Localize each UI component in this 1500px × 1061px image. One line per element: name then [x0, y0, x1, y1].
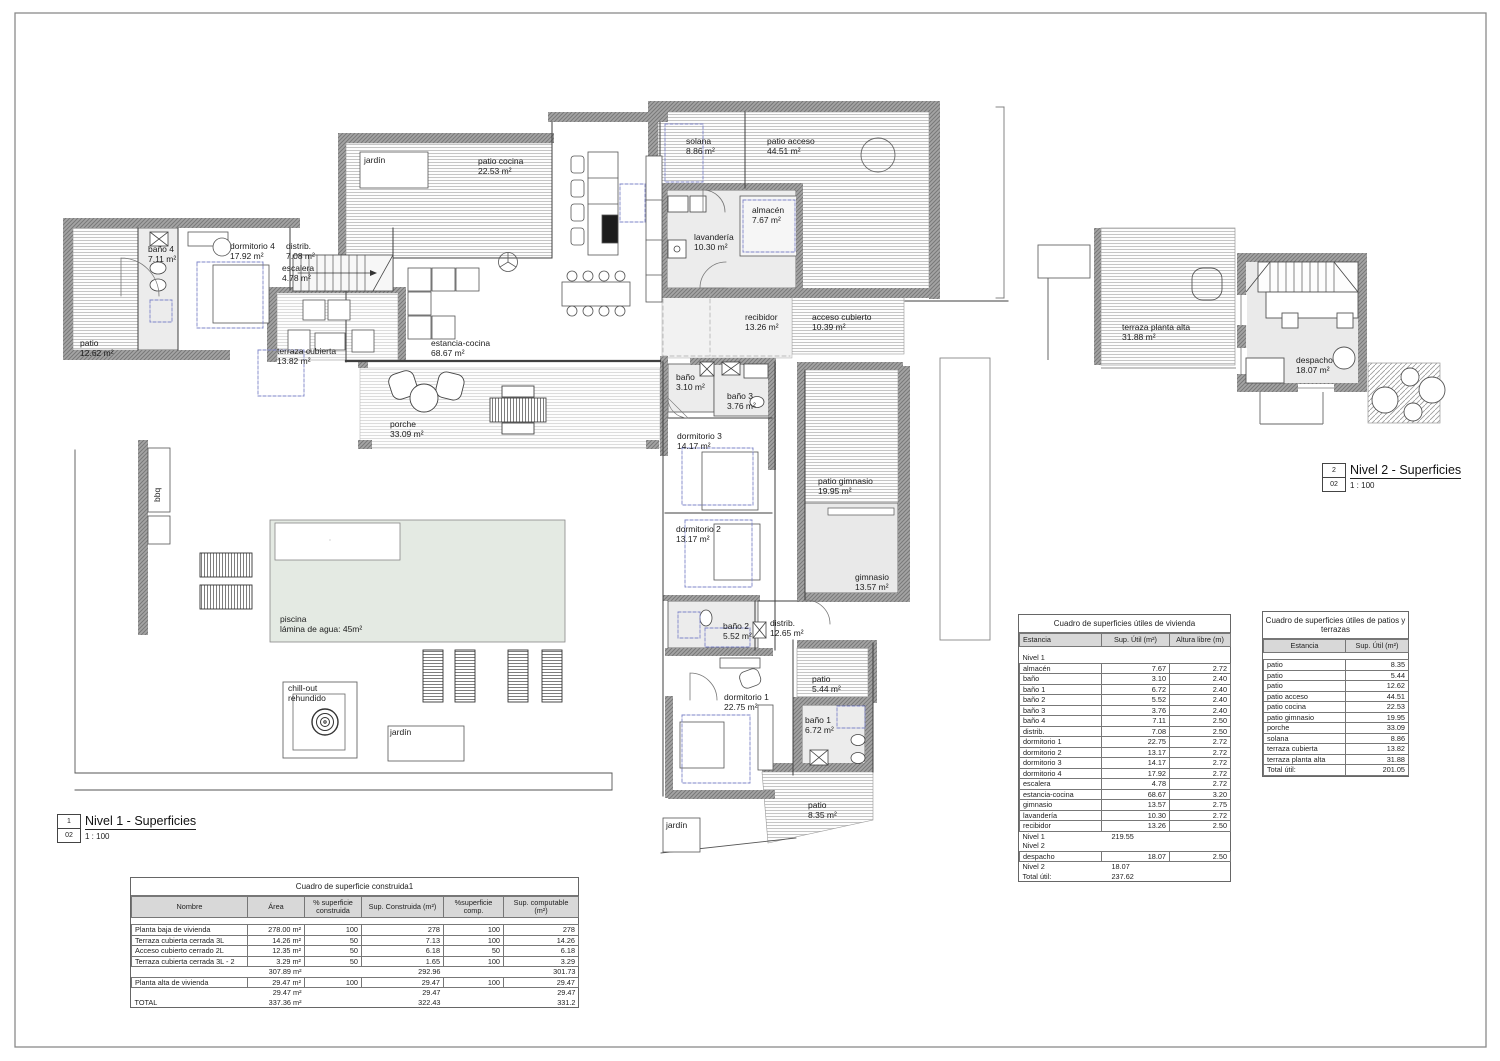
- table-cell: [305, 918, 362, 925]
- drawing-sheet: jardín patio cocina22.53 m² solana8.86 m…: [0, 0, 1500, 1061]
- titleblock-number-box: 2 02: [1322, 463, 1346, 492]
- table-cell: Nivel 1: [1020, 831, 1102, 841]
- room-label-porche: porche33.09 m²: [390, 419, 424, 439]
- table-cell: estancia-cocina: [1020, 789, 1102, 800]
- table-cell: 18.07: [1102, 862, 1170, 872]
- table-cell: [444, 918, 504, 925]
- table-cell: 2.75: [1170, 800, 1231, 811]
- table-cell: [362, 918, 444, 925]
- table-cell: 14.17: [1102, 758, 1170, 769]
- table-cell: TOTAL: [132, 998, 248, 1008]
- table-cell: 10.30: [1102, 810, 1170, 821]
- table-cell: escalera: [1020, 779, 1102, 790]
- plan-title: Nivel 2 - Superficies: [1350, 463, 1461, 479]
- table-row: patio5.44: [1264, 670, 1409, 681]
- table-cell: 2.40: [1170, 705, 1231, 716]
- table-cell: 8.86: [1346, 733, 1409, 744]
- table-row: porche33.09: [1264, 723, 1409, 734]
- table-cell: 100: [444, 935, 504, 946]
- table-cell: [305, 988, 362, 998]
- boundary-line: [996, 107, 1004, 298]
- room-label-estancia: estancia-cocina68.67 m²: [431, 338, 490, 358]
- table-row: [1264, 653, 1409, 660]
- sheet-number: 2: [1323, 464, 1345, 477]
- plan-scale: 1 : 100: [1350, 481, 1461, 490]
- room-label-patio835: patio8.35 m²: [808, 800, 837, 820]
- room-label-jardin-bottom: jardín: [666, 820, 687, 830]
- table-row: Planta alta de vivienda29.47 m²10029.471…: [132, 977, 579, 988]
- room-label-patio-gimnasio: patio gimnasio19.95 m²: [818, 476, 873, 496]
- lounger: [200, 585, 252, 609]
- table-cell: 2.50: [1170, 851, 1231, 862]
- patio-izq-deck: [73, 228, 138, 350]
- room-label-solana: solana8.86 m²: [686, 136, 715, 156]
- table-cell: recibidor: [1020, 821, 1102, 832]
- table-cell: 33.09: [1346, 723, 1409, 734]
- table-row: baño 16.722.40: [1020, 684, 1231, 695]
- table-cell: 2.72: [1170, 779, 1231, 790]
- room-label-recibidor: recibidor13.26 m²: [745, 312, 779, 332]
- table-cell: Nivel 2: [1020, 862, 1102, 872]
- table-cell: 13.17: [1102, 747, 1170, 758]
- dining-table: [562, 271, 630, 316]
- column-header: %superficie comp.: [444, 897, 504, 918]
- table-cell: 18.07: [1102, 851, 1170, 862]
- room-label-patio-acceso: patio acceso44.51 m²: [767, 136, 815, 156]
- table-row: lavandería10.302.72: [1020, 810, 1231, 821]
- room-label-despacho: despacho18.07 m²: [1296, 355, 1333, 375]
- table-cell: 29.47: [504, 988, 579, 998]
- column-header: Estancia: [1264, 640, 1346, 653]
- plan-title: Nivel 1 - Superficies: [85, 814, 196, 830]
- table-cell: baño 1: [1020, 684, 1102, 695]
- table-row: Total útil:201.05: [1264, 765, 1409, 776]
- table-cell: 337.36 m²: [248, 998, 305, 1008]
- room-label-patio544: patio5.44 m²: [812, 674, 841, 694]
- room-label-lavanderia: lavandería10.30 m²: [694, 232, 734, 252]
- table-row: Total útil:237.62: [1020, 872, 1231, 882]
- table-cell: 2.40: [1170, 674, 1231, 685]
- room-label-jardin-pool: jardín: [390, 727, 411, 737]
- table-cell: [444, 967, 504, 978]
- table-row: terraza planta alta31.88: [1264, 754, 1409, 765]
- room-label-piscina: piscinalámina de agua: 45m²: [280, 614, 362, 634]
- table-cell: porche: [1264, 723, 1346, 734]
- table-row: solana8.86: [1264, 733, 1409, 744]
- table-cell: [444, 988, 504, 998]
- table-cell: [1170, 653, 1231, 663]
- table-cell: [305, 998, 362, 1008]
- table-cell: Total útil:: [1020, 872, 1102, 882]
- table-cell: distrib.: [1020, 726, 1102, 737]
- table-cell: 2.72: [1170, 810, 1231, 821]
- table-cell: 2.40: [1170, 684, 1231, 695]
- room-label-patio-izq: patio12.62 m²: [80, 338, 114, 358]
- gym-equipment: [828, 508, 894, 515]
- lounger: [200, 553, 252, 577]
- table-cell: 2.50: [1170, 726, 1231, 737]
- table-row: almacén7.672.72: [1020, 663, 1231, 674]
- table-cell: 322.43: [362, 998, 444, 1008]
- level2-plan: [1038, 228, 1445, 424]
- table-cell: [1102, 653, 1170, 663]
- table-cell: patio cocina: [1264, 702, 1346, 713]
- table-cell: [1170, 841, 1231, 851]
- column-header: Altura libre (m): [1170, 634, 1231, 647]
- table-cell: 292.96: [362, 967, 444, 978]
- table-cell: 278: [504, 925, 579, 936]
- table-cell: 2.40: [1170, 695, 1231, 706]
- table-cell: 100: [305, 977, 362, 988]
- table-cell: [504, 918, 579, 925]
- table-cell: Total útil:: [1264, 765, 1346, 776]
- table-cell: 6.18: [362, 946, 444, 957]
- table-cell: [1102, 841, 1170, 851]
- column-header: Nombre: [132, 897, 248, 918]
- table-cell: despacho: [1020, 851, 1102, 862]
- table-cell: 5.44: [1346, 670, 1409, 681]
- table-cell: 307.89 m²: [248, 967, 305, 978]
- table-cell: [248, 918, 305, 925]
- table-cell: 12.62: [1346, 681, 1409, 692]
- table-cell: 2.72: [1170, 747, 1231, 758]
- table-cell: almacén: [1020, 663, 1102, 674]
- table-cell: [444, 998, 504, 1008]
- table-cell: Terraza cubierta cerrada 3L - 2: [132, 956, 248, 967]
- table-cell: [1346, 653, 1409, 660]
- table-cell: 7.08: [1102, 726, 1170, 737]
- table-cell: lavandería: [1020, 810, 1102, 821]
- room-label-escalera: escalera4.78 m²: [282, 263, 314, 283]
- planter: [940, 358, 990, 640]
- table-cell: 13.82: [1346, 744, 1409, 755]
- table-cell: 29.47: [362, 988, 444, 998]
- table-cell: 2.72: [1170, 758, 1231, 769]
- table-cell: 50: [444, 946, 504, 957]
- table-cell: 100: [444, 956, 504, 967]
- column-header: Sup. Construida (m²): [362, 897, 444, 918]
- table-cell: 13.26: [1102, 821, 1170, 832]
- table-cell: dormitorio 4: [1020, 768, 1102, 779]
- table-cell: [1170, 831, 1231, 841]
- table-row: gimnasio13.572.75: [1020, 800, 1231, 811]
- plan-scale: 1 : 100: [85, 832, 196, 841]
- lounger: [455, 650, 475, 702]
- room-label-dormitorio4: dormitorio 417.92 m²: [230, 241, 275, 261]
- table-cell: 7.67: [1102, 663, 1170, 674]
- room-label-bano2: baño 25.52 m²: [723, 621, 752, 641]
- table-cell: 22.53: [1346, 702, 1409, 713]
- column-header: % superficie construida: [305, 897, 362, 918]
- table-row: dormitorio 122.752.72: [1020, 737, 1231, 748]
- column-header: Área: [248, 897, 305, 918]
- table-cell: [1170, 872, 1231, 882]
- table-row: Nivel 1: [1020, 653, 1231, 663]
- table-cell: 29.47 m²: [248, 988, 305, 998]
- table-cell: terraza cubierta: [1264, 744, 1346, 755]
- table-cell: 6.72: [1102, 684, 1170, 695]
- table-cell: 29.47: [362, 977, 444, 988]
- room-label-patio-cocina: patio cocina22.53 m²: [478, 156, 523, 176]
- table-row: Acceso cubierto cerrado 2L12.35 m²506.18…: [132, 946, 579, 957]
- table-row: Terraza cubierta cerrada 3L - 23.29 m²50…: [132, 956, 579, 967]
- table-cell: patio gimnasio: [1264, 712, 1346, 723]
- room-label-dormitorio3: dormitorio 314.17 m²: [677, 431, 722, 451]
- table-cell: Terraza cubierta cerrada 3L: [132, 935, 248, 946]
- data-table: EstanciaSup. Útil (m²)Altura libre (m)Ni…: [1019, 633, 1231, 881]
- table-cell: 7.11: [1102, 716, 1170, 727]
- table-row: baño 33.762.40: [1020, 705, 1231, 716]
- table-title: Cuadro de superficies útiles de patios y…: [1263, 612, 1408, 639]
- l2-lines: [1260, 392, 1323, 424]
- table-cell: 3.10: [1102, 674, 1170, 685]
- table-cell: [132, 918, 248, 925]
- stairs-level2: [1246, 262, 1358, 292]
- table-cell: 3.29 m²: [248, 956, 305, 967]
- table-title: Cuadro de superficies útiles de vivienda: [1019, 615, 1230, 633]
- table-cell: 278.00 m²: [248, 925, 305, 936]
- titleblock-nivel2: 2 02 Nivel 2 - Superficies 1 : 100: [1322, 463, 1461, 492]
- table-row: patio gimnasio19.95: [1264, 712, 1409, 723]
- table-cell: 2.50: [1170, 821, 1231, 832]
- table-cell: 50: [305, 956, 362, 967]
- table-cell: [1170, 862, 1231, 872]
- table-row: Nivel 2: [1020, 841, 1231, 851]
- column-header: Sup. computable (m²): [504, 897, 579, 918]
- table-cell: gimnasio: [1020, 800, 1102, 811]
- room-label-gimnasio: gimnasio13.57 m²: [855, 572, 889, 592]
- table-cell: 3.20: [1170, 789, 1231, 800]
- data-table: EstanciaSup. Útil (m²)patio8.35patio5.44…: [1263, 639, 1409, 776]
- table-cell: 13.57: [1102, 800, 1170, 811]
- pool-step: [275, 523, 400, 560]
- room-label-dormitorio2: dormitorio 213.17 m²: [676, 524, 721, 544]
- table-superficies-vivienda: Cuadro de superficies útiles de vivienda…: [1018, 614, 1231, 882]
- table-cell: Nivel 1: [1020, 653, 1102, 663]
- terraza-alta-deck: [1101, 228, 1235, 365]
- garden-wall: [138, 440, 148, 635]
- table-row: Nivel 218.07: [1020, 862, 1231, 872]
- table-cell: baño 3: [1020, 705, 1102, 716]
- table-cell: 7.13: [362, 935, 444, 946]
- table-row: baño 47.112.50: [1020, 716, 1231, 727]
- room-label-chillout: chill-outrehundido: [288, 683, 326, 703]
- lounger: [542, 650, 562, 702]
- table-cell: 100: [444, 977, 504, 988]
- table-cell: [305, 967, 362, 978]
- sheet-code: 02: [58, 828, 80, 842]
- lounger: [508, 650, 528, 702]
- table-cell: 50: [305, 935, 362, 946]
- bbq-counter: [148, 448, 170, 512]
- table-cell: dormitorio 2: [1020, 747, 1102, 758]
- table-cell: 14.26 m²: [248, 935, 305, 946]
- table-cell: patio: [1264, 660, 1346, 671]
- table-cell: [132, 967, 248, 978]
- table-row: dormitorio 314.172.72: [1020, 758, 1231, 769]
- table-cell: 278: [362, 925, 444, 936]
- table-cell: 2.50: [1170, 716, 1231, 727]
- room-label-bbq: bbq: [152, 488, 162, 502]
- table-row: Planta baja de vivienda278.00 m²10027810…: [132, 925, 579, 936]
- sheet-number: 1: [58, 815, 80, 828]
- table-cell: 301.73: [504, 967, 579, 978]
- table-cell: 237.62: [1102, 872, 1170, 882]
- bbq-counter: [148, 516, 170, 544]
- table-superficies-patios: Cuadro de superficies útiles de patios y…: [1262, 611, 1409, 777]
- roof-element: [1038, 245, 1090, 278]
- table-row: baño 25.522.40: [1020, 695, 1231, 706]
- table-cell: Nivel 2: [1020, 841, 1102, 851]
- table-row: dormitorio 213.172.72: [1020, 747, 1231, 758]
- table-superficie-construida: Cuadro de superficie construida1NombreÁr…: [130, 877, 579, 1008]
- table-cell: Planta baja de vivienda: [132, 925, 248, 936]
- table-row: patio8.35: [1264, 660, 1409, 671]
- table-row: TOTAL337.36 m²322.43331.2: [132, 998, 579, 1008]
- table-cell: baño: [1020, 674, 1102, 685]
- column-header: Sup. Útil (m²): [1346, 640, 1409, 653]
- sofa-group: [408, 253, 518, 340]
- data-table: NombreÁrea% superficie construidaSup. Co…: [131, 896, 579, 1007]
- table-cell: 2.72: [1170, 768, 1231, 779]
- lounger: [423, 650, 443, 702]
- table-row: estancia-cocina68.673.20: [1020, 789, 1231, 800]
- column-header: Sup. Útil (m²): [1102, 634, 1170, 647]
- table-cell: 29.47: [504, 977, 579, 988]
- table-cell: patio: [1264, 681, 1346, 692]
- table-cell: 44.51: [1346, 691, 1409, 702]
- table-row: baño3.102.40: [1020, 674, 1231, 685]
- table-cell: baño 2: [1020, 695, 1102, 706]
- table-cell: dormitorio 3: [1020, 758, 1102, 769]
- table-cell: 5.52: [1102, 695, 1170, 706]
- room-label-terraza-alta: terraza planta alta31.88 m²: [1122, 322, 1190, 342]
- table-cell: 29.47 m²: [248, 977, 305, 988]
- table-row: escalera4.782.72: [1020, 779, 1231, 790]
- column-header: Estancia: [1020, 634, 1102, 647]
- table-cell: 14.26: [504, 935, 579, 946]
- table-row: distrib.7.082.50: [1020, 726, 1231, 737]
- room-label-almacen: almacén7.67 m²: [752, 205, 784, 225]
- titleblock-nivel1: 1 02 Nivel 1 - Superficies 1 : 100: [57, 814, 196, 843]
- table-cell: patio: [1264, 670, 1346, 681]
- room-label-acceso-cubierto: acceso cubierto10.39 m²: [812, 312, 872, 332]
- table-row: Terraza cubierta cerrada 3L14.26 m²507.1…: [132, 935, 579, 946]
- room-label-bano: baño3.10 m²: [676, 372, 705, 392]
- table-cell: [1264, 653, 1346, 660]
- table-cell: Planta alta de vivienda: [132, 977, 248, 988]
- room-label-distrib2: distrib.12.65 m²: [770, 618, 804, 638]
- room-label-bano1: baño 16.72 m²: [805, 715, 834, 735]
- table-cell: 3.76: [1102, 705, 1170, 716]
- table-row: patio cocina22.53: [1264, 702, 1409, 713]
- table-row: recibidor13.262.50: [1020, 821, 1231, 832]
- room-label-bano4: baño 47.11 m²: [148, 244, 176, 264]
- table-row: Nivel 1219.55: [1020, 831, 1231, 841]
- table-cell: 68.67: [1102, 789, 1170, 800]
- table-cell: 50: [305, 946, 362, 957]
- table-cell: 331.2: [504, 998, 579, 1008]
- table-cell: 100: [444, 925, 504, 936]
- room-label-jardin: jardín: [364, 155, 385, 165]
- terrace-wall: [1094, 228, 1101, 365]
- sheet-code: 02: [1323, 477, 1345, 491]
- table-cell: solana: [1264, 733, 1346, 744]
- table-cell: patio acceso: [1264, 691, 1346, 702]
- room-label-terraza-cubierta: terraza cubierta13.82 m²: [277, 346, 336, 366]
- table-cell: 100: [305, 925, 362, 936]
- titleblock-text: Nivel 1 - Superficies 1 : 100: [85, 814, 196, 841]
- table-cell: 2.72: [1170, 737, 1231, 748]
- table-cell: 22.75: [1102, 737, 1170, 748]
- table-cell: 12.35 m²: [248, 946, 305, 957]
- table-cell: 201.05: [1346, 765, 1409, 776]
- table-title: Cuadro de superficie construida1: [131, 878, 578, 896]
- table-row: 307.89 m²292.96301.73: [132, 967, 579, 978]
- table-row: patio12.62: [1264, 681, 1409, 692]
- table-cell: 3.29: [504, 956, 579, 967]
- room-label-bano3: baño 33.76 m²: [727, 391, 756, 411]
- table-cell: dormitorio 1: [1020, 737, 1102, 748]
- table-cell: 2.72: [1170, 663, 1231, 674]
- table-cell: terraza planta alta: [1264, 754, 1346, 765]
- room-label-distrib: distrib.7.08 m²: [286, 241, 315, 261]
- titleblock-text: Nivel 2 - Superficies 1 : 100: [1350, 463, 1461, 490]
- table-row: 29.47 m²29.4729.47: [132, 988, 579, 998]
- room-label-dormitorio1: dormitorio 122.75 m²: [724, 692, 769, 712]
- table-cell: Acceso cubierto cerrado 2L: [132, 946, 248, 957]
- table-cell: 17.92: [1102, 768, 1170, 779]
- table-cell: 8.35: [1346, 660, 1409, 671]
- table-cell: 4.78: [1102, 779, 1170, 790]
- table-cell: baño 4: [1020, 716, 1102, 727]
- table-cell: 219.55: [1102, 831, 1170, 841]
- table-cell: 6.18: [504, 946, 579, 957]
- table-row: despacho18.072.50: [1020, 851, 1231, 862]
- table-row: [132, 918, 579, 925]
- table-row: terraza cubierta13.82: [1264, 744, 1409, 755]
- titleblock-number-box: 1 02: [57, 814, 81, 843]
- table-row: patio acceso44.51: [1264, 691, 1409, 702]
- table-cell: 1.65: [362, 956, 444, 967]
- table-row: dormitorio 417.922.72: [1020, 768, 1231, 779]
- table-cell: 31.88: [1346, 754, 1409, 765]
- table-cell: [132, 988, 248, 998]
- table-cell: 19.95: [1346, 712, 1409, 723]
